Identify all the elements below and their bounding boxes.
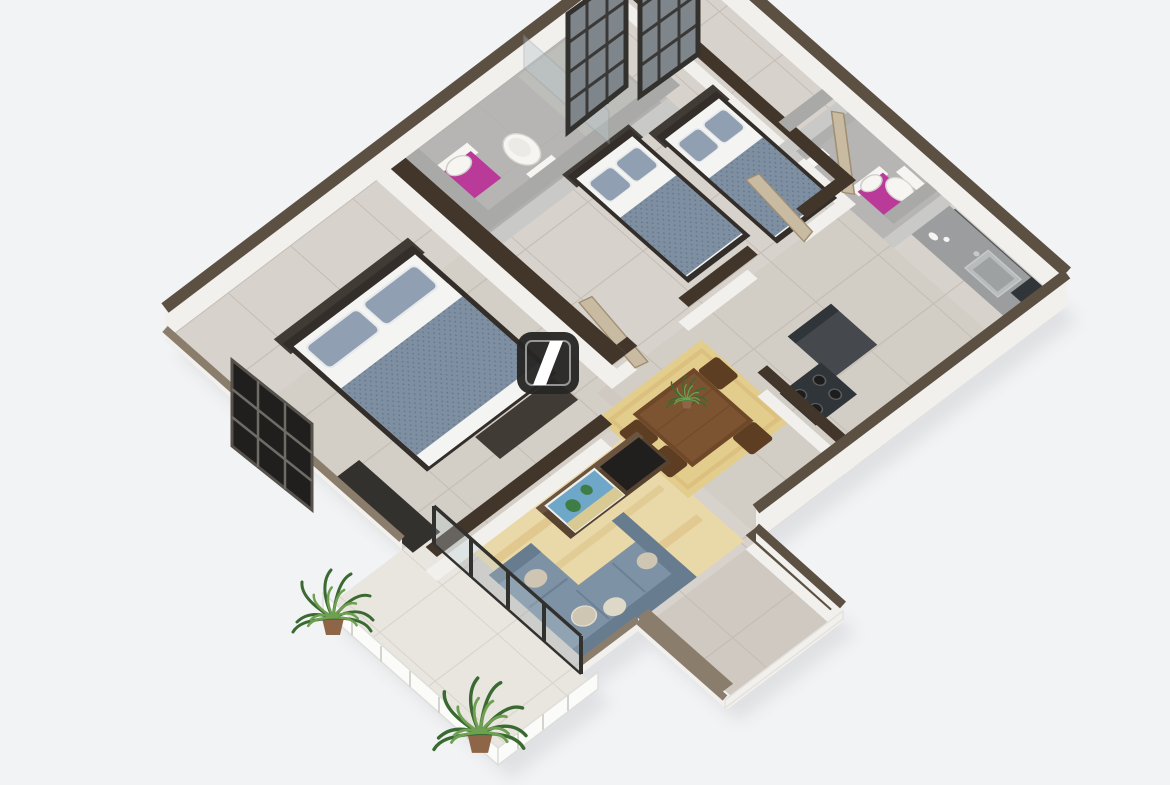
floor-plan-render <box>0 0 1170 785</box>
floor-plan-stage <box>0 0 1170 785</box>
watermark-badge[interactable] <box>517 332 579 394</box>
